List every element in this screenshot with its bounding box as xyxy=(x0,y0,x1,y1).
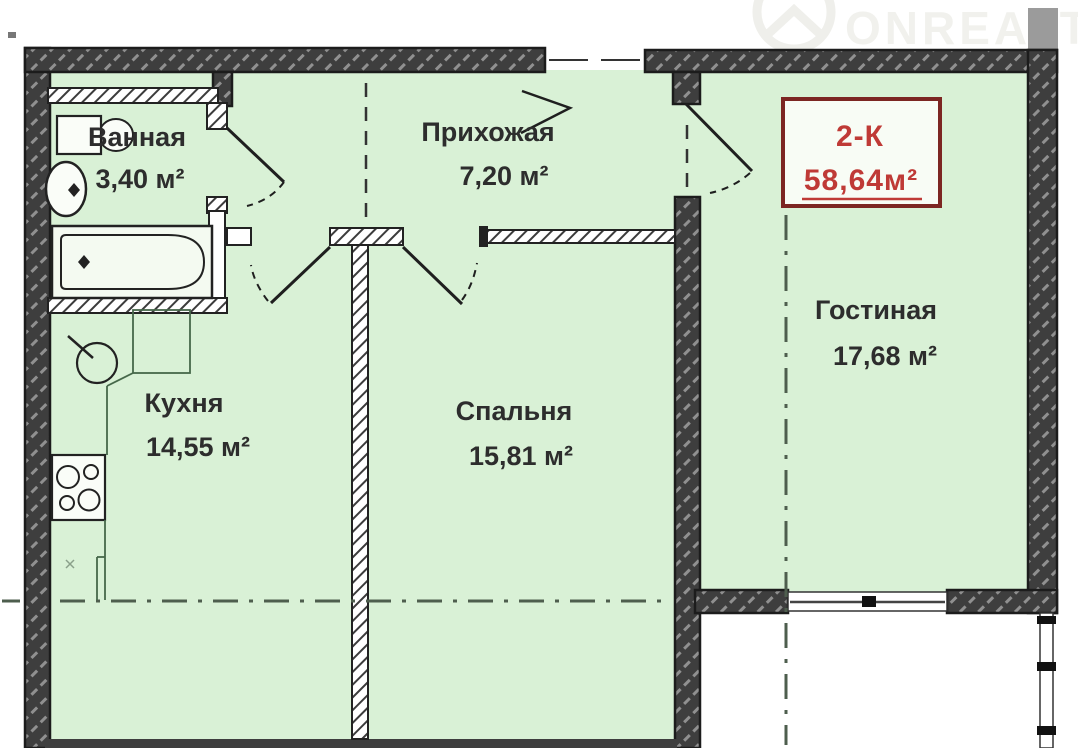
balcony-rail xyxy=(1037,613,1056,748)
room-label-kitchen: Кухня xyxy=(145,388,224,418)
vent-shaft-wall xyxy=(48,88,218,103)
watermark-house-icon xyxy=(768,10,820,34)
floor-plan: ONREALT xyxy=(0,0,1078,748)
hallway-wall-stub xyxy=(227,228,251,245)
window-mullion xyxy=(862,596,876,607)
floor-plan-page: ONREALT xyxy=(0,0,1078,748)
rail-post xyxy=(1037,662,1056,671)
wall-right xyxy=(1028,50,1057,613)
apartment-total-area: 58,64м² xyxy=(804,164,918,197)
apartment-badge: 2-К 58,64м² xyxy=(783,99,940,206)
bathroom-wall-upper xyxy=(207,103,227,129)
wall-kitchen-bedroom xyxy=(352,245,368,739)
watermark: ONREALT xyxy=(8,0,1078,54)
rail-post xyxy=(1037,616,1056,624)
wall-end-cap xyxy=(480,227,487,246)
wall-bedroom-living xyxy=(675,197,700,748)
wall-hallway-bedroom xyxy=(483,230,675,243)
washbasin-icon xyxy=(46,162,86,216)
room-label-bathroom: Ванная xyxy=(88,122,186,152)
wall-top-left xyxy=(25,48,545,72)
room-area-bedroom: 15,81 м² xyxy=(469,441,573,471)
wall-left xyxy=(25,48,50,748)
wall-living-bottom-right xyxy=(947,590,1057,613)
entrance-pier xyxy=(673,72,700,104)
wall-living-bottom-left xyxy=(695,590,788,613)
hallway-t-pier xyxy=(330,228,403,245)
wall-top-right xyxy=(645,50,1057,72)
rail-post xyxy=(1037,726,1056,735)
room-label-living: Гостиная xyxy=(815,295,937,325)
room-area-bathroom: 3,40 м² xyxy=(95,164,184,194)
apartment-type: 2-К xyxy=(836,120,884,153)
window-living-room xyxy=(788,592,947,611)
stove-icon xyxy=(52,455,105,520)
room-label-hallway: Прихожая xyxy=(421,117,554,147)
room-label-bedroom: Спальня xyxy=(456,396,573,426)
cropped-wall-stub xyxy=(1028,8,1058,50)
bathtub-icon xyxy=(52,226,212,298)
room-area-living: 17,68 м² xyxy=(833,341,937,371)
room-area-kitchen: 14,55 м² xyxy=(146,432,250,462)
room-area-hallway: 7,20 м² xyxy=(459,161,548,191)
artifact-speck xyxy=(8,32,16,38)
wall-bottom-crop-band xyxy=(45,739,677,748)
